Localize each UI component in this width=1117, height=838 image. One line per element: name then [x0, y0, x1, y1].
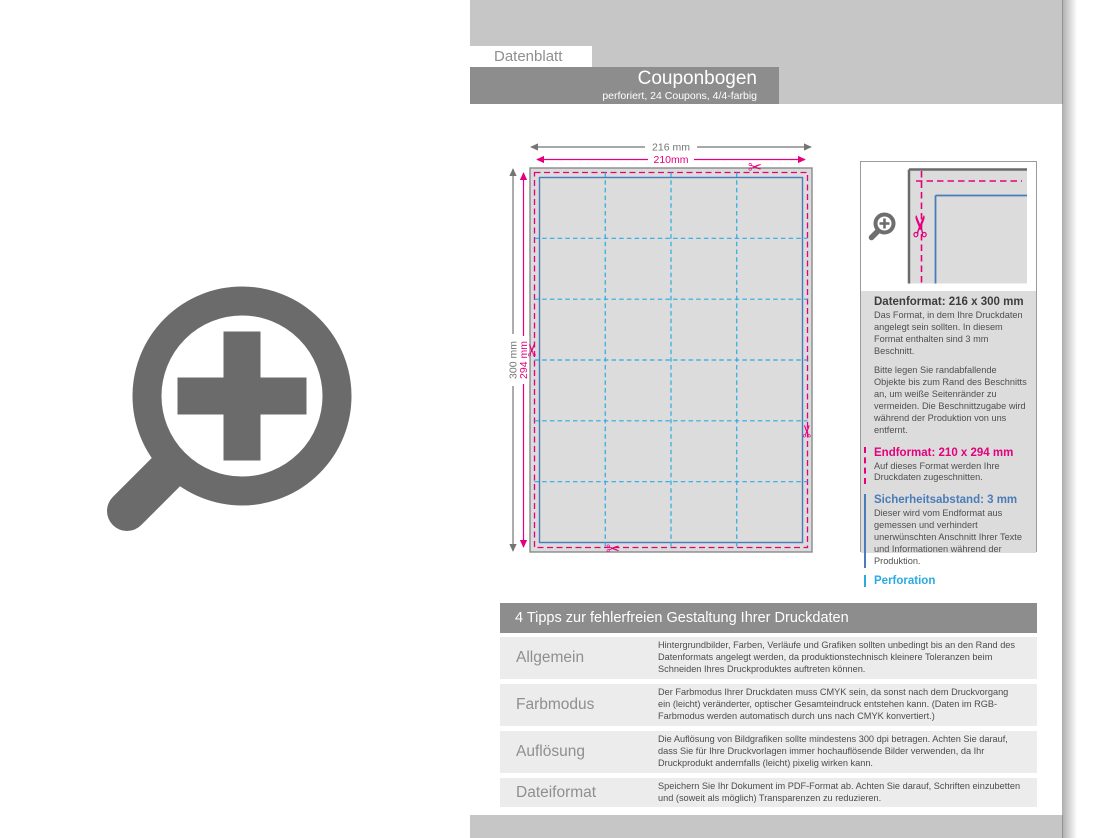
- format-descriptions: Datenformat: 216 x 300 mm Das Format, in…: [861, 291, 1036, 553]
- footer-bar: [470, 815, 1063, 838]
- product-subtitle: perforiert, 24 Coupons, 4/4-farbig: [470, 90, 757, 102]
- sicherheitsabstand-title: Sicherheitsabstand: 3 mm: [874, 494, 1028, 506]
- datenformat-text: Das Format, in dem Ihre Druckdaten angel…: [874, 310, 1028, 358]
- scissors-icon: ✂: [904, 213, 939, 238]
- product-title: Couponbogen: [470, 68, 757, 90]
- tips-table: Allgemein Hintergrundbilder, Farben, Ver…: [500, 637, 1037, 812]
- perforation-section: Perforation: [864, 575, 1028, 587]
- scissors-icon: ✂: [606, 540, 620, 560]
- tip-row-allgemein: Allgemein Hintergrundbilder, Farben, Ver…: [500, 637, 1037, 679]
- sheet-format-diagram: 216 mm 210mm 300 mm 294 mm ✂ ✂ ✂ ✂: [495, 135, 845, 565]
- tip-text: Der Farbmodus Ihrer Druckdaten muss CMYK…: [658, 684, 1037, 726]
- product-header: Couponbogen perforiert, 24 Coupons, 4/4-…: [470, 67, 779, 104]
- magnifier-handle: [127, 471, 167, 511]
- tip-label: Dateiformat: [500, 784, 658, 802]
- tip-text: Die Auflösung von Bildgrafiken sollte mi…: [658, 731, 1037, 773]
- scissors-icon: ✂: [748, 158, 762, 178]
- scissors-icon: ✂: [798, 424, 818, 438]
- datenblatt-label: Datenblatt: [470, 46, 592, 67]
- corner-detail-illustration: ✂: [861, 162, 1036, 291]
- tip-text: Speichern Sie Ihr Dokument im PDF-Format…: [658, 778, 1037, 808]
- dim-label-outer-width: 216 mm: [652, 142, 690, 154]
- zoom-detail-icon: [872, 215, 894, 238]
- tip-label: Farbmodus: [500, 696, 658, 714]
- endformat-title: Endformat: 210 x 294 mm: [874, 447, 1028, 459]
- tip-row-aufloesung: Auflösung Die Auflösung von Bildgrafiken…: [500, 731, 1037, 773]
- tip-text: Hintergrundbilder, Farben, Verläufe und …: [658, 637, 1037, 679]
- perforation-title: Perforation: [874, 575, 1028, 587]
- tip-label: Auflösung: [500, 743, 658, 761]
- scissors-icon: ✂: [523, 343, 543, 357]
- page-edge-shadow: [1062, 0, 1077, 838]
- format-info-box: ✂ Datenformat: 216 x 300 mm Das Format, …: [860, 161, 1037, 552]
- endformat-section: Endformat: 210 x 294 mm Auf dieses Forma…: [864, 447, 1028, 485]
- datasheet-page: Datenblatt Couponbogen perforiert, 24 Co…: [0, 0, 1117, 838]
- tip-row-dateiformat: Dateiformat Speichern Sie Ihr Dokument i…: [500, 778, 1037, 808]
- endformat-text: Auf dieses Format werden Ihre Druckdaten…: [874, 461, 1028, 485]
- tips-header: 4 Tipps zur fehlerfreien Gestaltung Ihre…: [500, 603, 1037, 633]
- datenformat-text: Bitte legen Sie randabfallende Objekte b…: [874, 365, 1028, 437]
- datenformat-section: Datenformat: 216 x 300 mm Das Format, in…: [864, 296, 1028, 437]
- tip-label: Allgemein: [500, 649, 658, 667]
- sicherheitsabstand-text: Dieser wird vom Endformat aus gemessen u…: [874, 508, 1028, 568]
- tip-row-farbmodus: Farbmodus Der Farbmodus Ihrer Druckdaten…: [500, 684, 1037, 726]
- datenformat-title: Datenformat: 216 x 300 mm: [874, 296, 1028, 308]
- sicherheitsabstand-section: Sicherheitsabstand: 3 mm Dieser wird vom…: [864, 494, 1028, 568]
- zoom-in-icon[interactable]: [80, 260, 410, 590]
- plus-vertical-bar: [224, 332, 261, 461]
- dim-label-inner-width: 210mm: [653, 154, 688, 166]
